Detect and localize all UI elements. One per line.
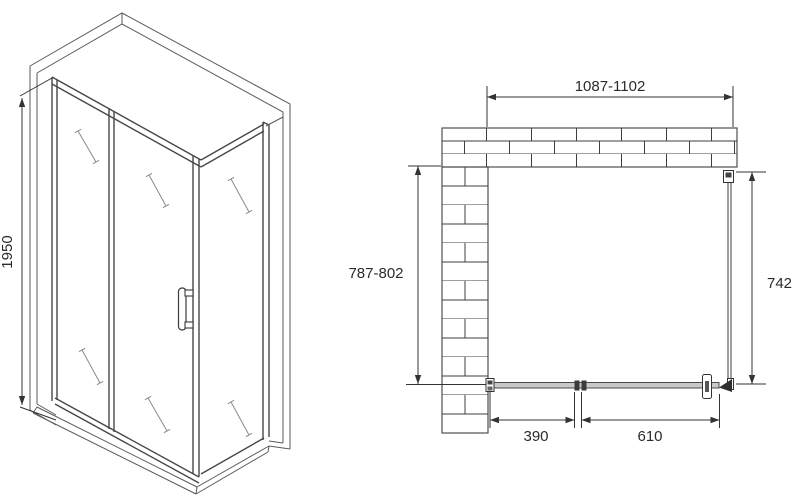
reflection-mark [75, 129, 99, 163]
glass-enclosure-frame [52, 77, 201, 483]
corner-bracket-right [719, 379, 734, 393]
technical-drawing-page: 1950 [0, 0, 800, 497]
wall-outline [30, 13, 290, 449]
fixed-width-dimension: 610 [582, 392, 720, 445]
reflection-mark [79, 348, 103, 384]
side-dimension: 742 [736, 172, 792, 384]
door-width-dimension-label: 390 [523, 428, 548, 445]
side-panel-3d [201, 117, 283, 474]
door-width-dimension: 390 [490, 392, 575, 445]
depth-dimension-label: 787-802 [348, 265, 403, 282]
side-panel-plan [724, 171, 734, 381]
brick-wall-horizontal [442, 128, 737, 167]
brick-wall-vertical [442, 167, 488, 433]
door-handle-3d [179, 288, 194, 330]
glass-reflections [75, 129, 252, 436]
wall-bracket-left [486, 379, 494, 392]
width-dimension: 1087-1102 [487, 78, 733, 127]
isometric-view: 1950 [0, 13, 290, 494]
side-dimension-label: 742 [767, 275, 792, 292]
shower-enclosure-drawing: 1950 [0, 0, 800, 497]
fixed-width-dimension-label: 610 [637, 428, 662, 445]
reflection-mark [146, 173, 169, 207]
reflection-mark [228, 400, 252, 436]
door-handle-plan [703, 375, 712, 399]
reflection-mark [145, 396, 170, 432]
plan-view: 1087-1102 787-802 742 390 61 [348, 78, 792, 445]
height-dimension-label: 1950 [0, 235, 16, 268]
width-dimension-label: 1087-1102 [575, 78, 646, 95]
height-dimension: 1950 [0, 78, 56, 420]
reflection-mark [228, 177, 252, 213]
door-track-plan [486, 375, 734, 399]
